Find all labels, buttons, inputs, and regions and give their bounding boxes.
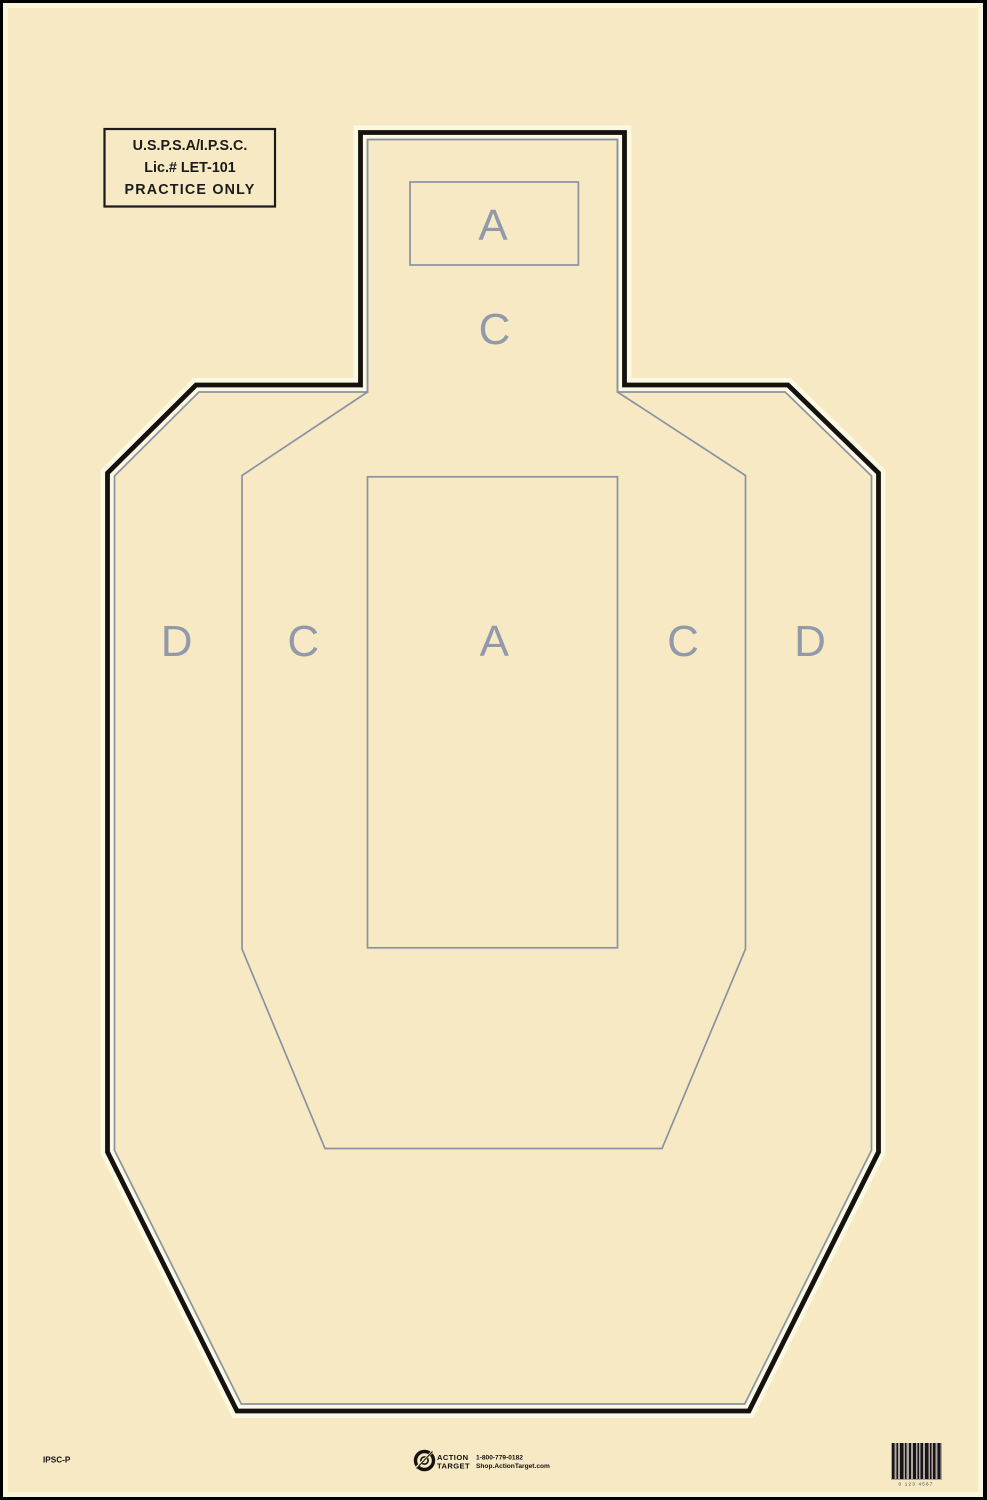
- svg-text:C: C: [479, 305, 511, 354]
- svg-text:D: D: [794, 617, 826, 666]
- svg-text:A: A: [480, 617, 510, 666]
- svg-text:C: C: [667, 617, 699, 666]
- svg-text:IPSC-P: IPSC-P: [43, 1456, 71, 1465]
- svg-text:A: A: [478, 201, 508, 250]
- svg-text:1-800-779-0182: 1-800-779-0182: [476, 1455, 523, 1462]
- svg-text:PRACTICE ONLY: PRACTICE ONLY: [124, 182, 255, 198]
- svg-text:Shop.ActionTarget.com: Shop.ActionTarget.com: [476, 1463, 550, 1470]
- svg-text:D: D: [161, 617, 193, 666]
- svg-text:Lic.# LET-101: Lic.# LET-101: [144, 160, 235, 176]
- svg-text:TARGET: TARGET: [437, 1462, 470, 1471]
- svg-text:C: C: [287, 617, 319, 666]
- svg-text:0 123 4567: 0 123 4567: [899, 1482, 934, 1487]
- svg-text:U.S.P.S.A/I.P.S.C.: U.S.P.S.A/I.P.S.C.: [133, 138, 248, 154]
